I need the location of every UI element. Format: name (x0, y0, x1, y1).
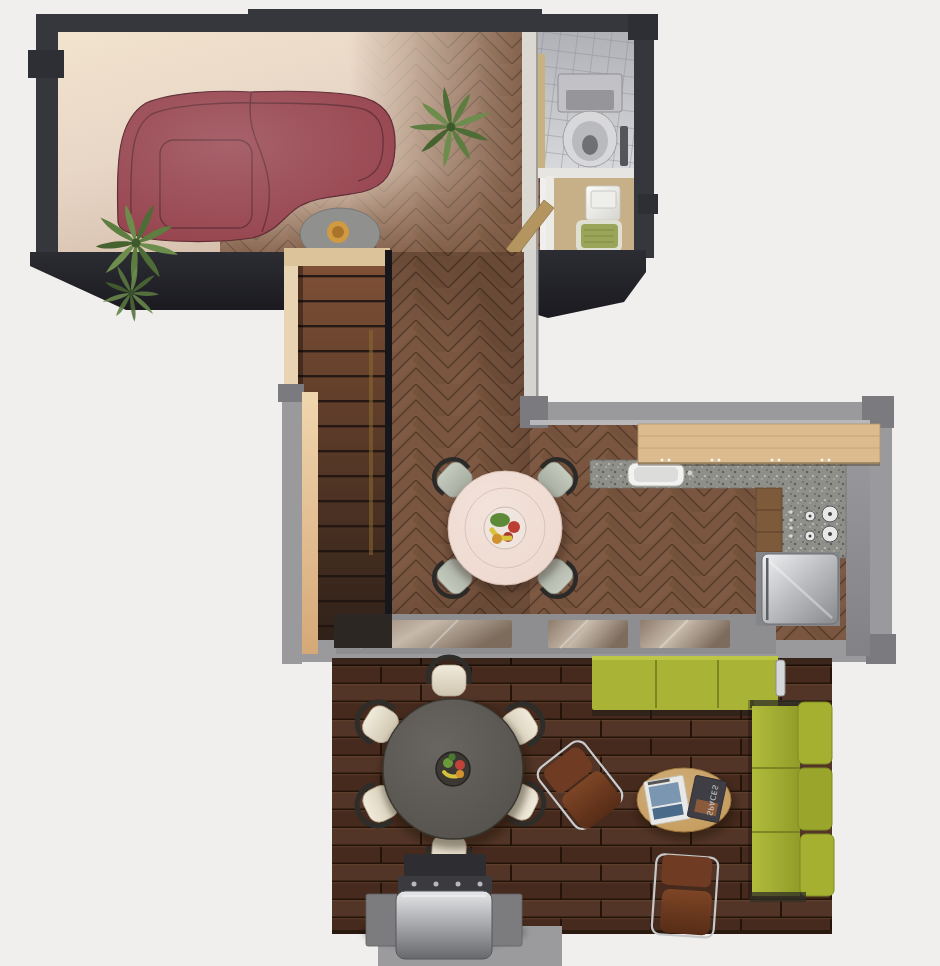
floor-plan-stage: SPACES (0, 0, 940, 966)
green-mat (576, 220, 622, 252)
wall-cap-se (866, 634, 896, 664)
north-wall (36, 14, 654, 32)
outdoor-sofa-vertical (748, 700, 834, 902)
east-wall-cap-top (628, 14, 658, 40)
grill-side-table (366, 894, 398, 946)
wall-cap-nw (278, 384, 304, 402)
back-cushion (798, 768, 832, 830)
sink (628, 463, 693, 486)
corridor-east-wall (524, 250, 538, 406)
bar-shadow (638, 462, 880, 466)
bathroom (538, 28, 636, 172)
grill-hood (396, 891, 492, 959)
dining-set (427, 452, 583, 604)
lazy-susan-fruit (436, 752, 470, 786)
floor-plan-render: SPACES (0, 0, 940, 966)
grill-back-shelf (404, 854, 486, 878)
grill-side-table (490, 894, 522, 946)
back-cushion (800, 834, 834, 896)
chrome-armrest (776, 660, 785, 696)
breakfast-bar (638, 424, 880, 464)
railing-balusters-brass (369, 330, 373, 555)
glass-panel (548, 620, 628, 648)
bathroom-door (538, 54, 545, 172)
deck: SPACES (332, 656, 834, 966)
toilet-brush (620, 126, 628, 166)
stair-railing (385, 250, 392, 648)
back-cushion (798, 702, 832, 764)
east-wall (634, 28, 654, 258)
kitchen-north-wall (526, 402, 892, 422)
fruit-bowl (484, 507, 526, 549)
sofa-seats (752, 706, 800, 896)
washing-machine-lid (591, 191, 616, 208)
west-wall-cap (28, 50, 64, 78)
sliding-glass-doors (336, 614, 776, 654)
magazine-light (643, 775, 690, 825)
fridge-handle (766, 558, 769, 620)
east-wall-cap-mid (638, 194, 658, 214)
door-mat (334, 614, 392, 648)
corridor-east-wall-edge (536, 250, 539, 406)
base-cabinet-wood (756, 488, 782, 552)
stair-landing (284, 248, 390, 266)
refrigerator (756, 552, 840, 626)
west-wall-inner-face (302, 392, 318, 654)
west-wall (282, 388, 302, 664)
